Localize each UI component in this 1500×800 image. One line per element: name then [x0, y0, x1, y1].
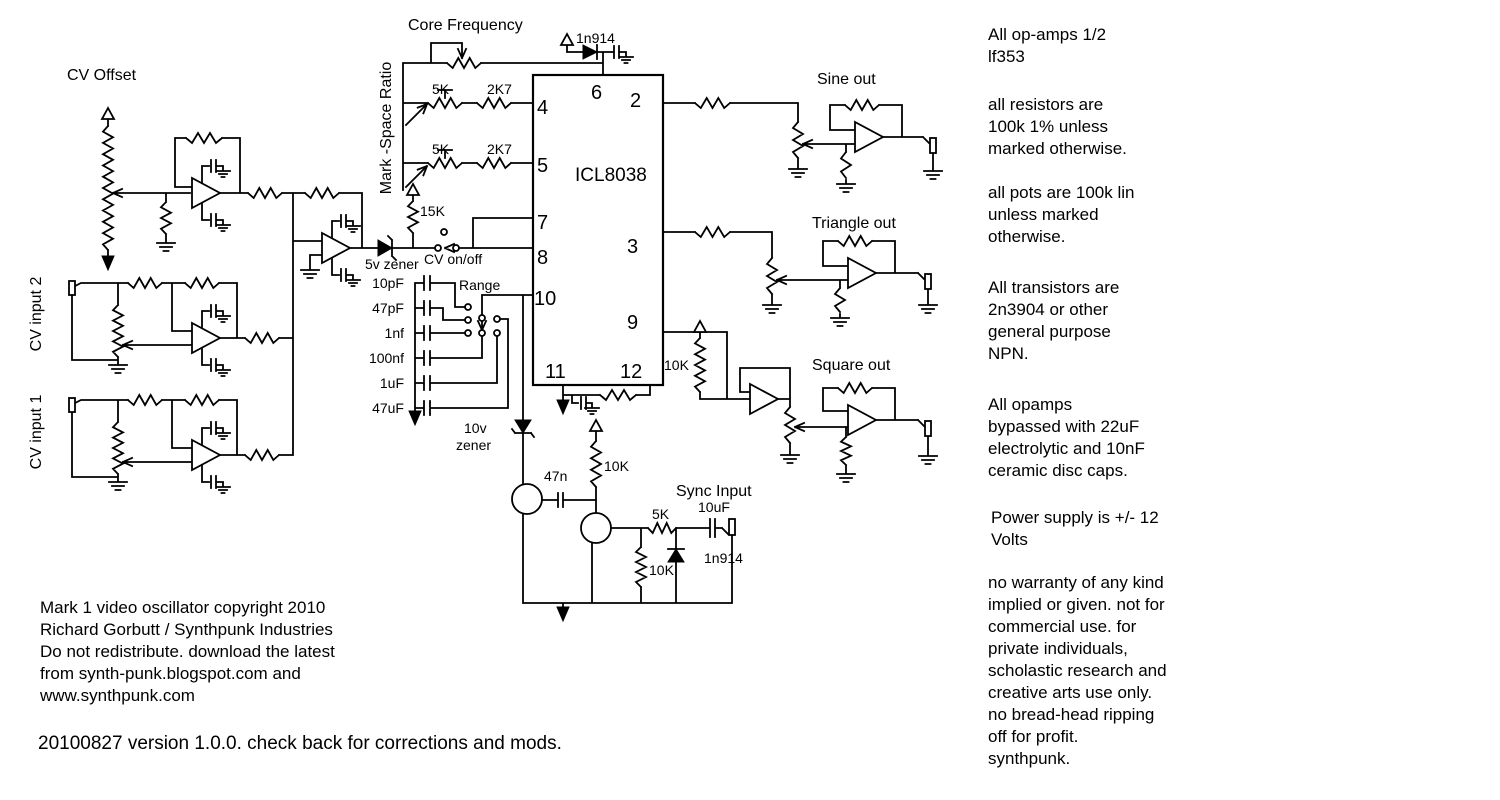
note-opamps: All op-amps 1/2 lf353	[988, 24, 1208, 68]
chip-name: ICL8038	[575, 165, 647, 186]
note-pots: all pots are 100k lin unless marked othe…	[988, 182, 1208, 248]
note-transistors: All transistors are 2n3904 or other gene…	[988, 277, 1208, 365]
note-resistors: all resistors are 100k 1% unless marked …	[988, 94, 1208, 160]
label-res-2k7-bottom: 2K7	[487, 141, 512, 157]
label-square-out: Square out	[812, 357, 891, 374]
label-cap-47n: 47n	[544, 468, 567, 484]
label-zener-5v: 5v zener	[365, 256, 419, 272]
label-zener-10v-line1: 10v	[464, 420, 487, 436]
label-zener-10v-line2: zener	[456, 437, 491, 453]
chip-pin-11: 11	[545, 361, 566, 383]
label-res-15k: 15K	[420, 203, 446, 219]
footer-copyright: Mark 1 video oscillator copyright 2010 R…	[40, 597, 460, 707]
label-diode-1n914-sync: 1n914	[704, 550, 743, 566]
label-cap-47pf: 47pF	[372, 300, 404, 316]
schematic-wiring	[69, 34, 942, 621]
label-cv-input-2: CV input 2	[28, 277, 45, 352]
label-res-10k-sync-ground: 10K	[649, 562, 675, 578]
label-diode-1n914-top: 1n914	[576, 30, 615, 46]
label-res-10k-sync-pullup: 10K	[604, 458, 630, 474]
label-cap-1uf: 1uF	[380, 375, 404, 391]
chip-pin-2: 2	[630, 90, 641, 112]
note-bypass: All opamps bypassed with 22uF electrolyt…	[988, 394, 1218, 482]
label-cap-1nf: 1nf	[385, 325, 405, 341]
label-sync-input: Sync Input	[676, 483, 752, 500]
note-power: Power supply is +/- 12 Volts	[991, 507, 1221, 551]
chip-pin-8: 8	[537, 247, 548, 269]
chip-pin-12: 12	[620, 361, 642, 383]
chip-pin-4: 4	[537, 97, 548, 119]
label-cv-input-1: CV input 1	[28, 395, 45, 470]
chip-pin-6: 6	[591, 82, 602, 104]
note-disclaimer: no warranty of any kind implied or given…	[988, 572, 1218, 770]
label-cap-100nf: 100nf	[369, 350, 404, 366]
chip-pin-5: 5	[537, 155, 548, 177]
label-range: Range	[459, 277, 500, 293]
label-cv-offset: CV Offset	[67, 67, 137, 84]
label-cap-47uf: 47uF	[372, 400, 404, 416]
label-res-2k7-top: 2K7	[487, 81, 512, 97]
label-pot-5k-bottom: 5K	[432, 141, 450, 157]
label-core-frequency: Core Frequency	[408, 17, 523, 34]
footer-version: 20100827 version 1.0.0. check back for c…	[38, 733, 738, 755]
label-sine-out: Sine out	[817, 71, 876, 88]
chip-pin-7: 7	[537, 212, 548, 234]
chip-pin-10: 10	[534, 288, 556, 310]
label-res-10k-square: 10K	[664, 357, 690, 373]
label-res-5k-sync: 5K	[652, 506, 670, 522]
label-mark-space-ratio: Mark -Space Ratio	[378, 62, 395, 195]
label-cap-10pf: 10pF	[372, 275, 404, 291]
chip-pin-9: 9	[627, 312, 638, 334]
label-cap-10uf: 10uF	[698, 499, 730, 515]
label-pot-5k-top: 5K	[432, 81, 450, 97]
label-triangle-out: Triangle out	[812, 215, 896, 232]
label-cv-on-off: CV on/off	[424, 251, 482, 267]
chip-pin-3: 3	[627, 236, 638, 258]
